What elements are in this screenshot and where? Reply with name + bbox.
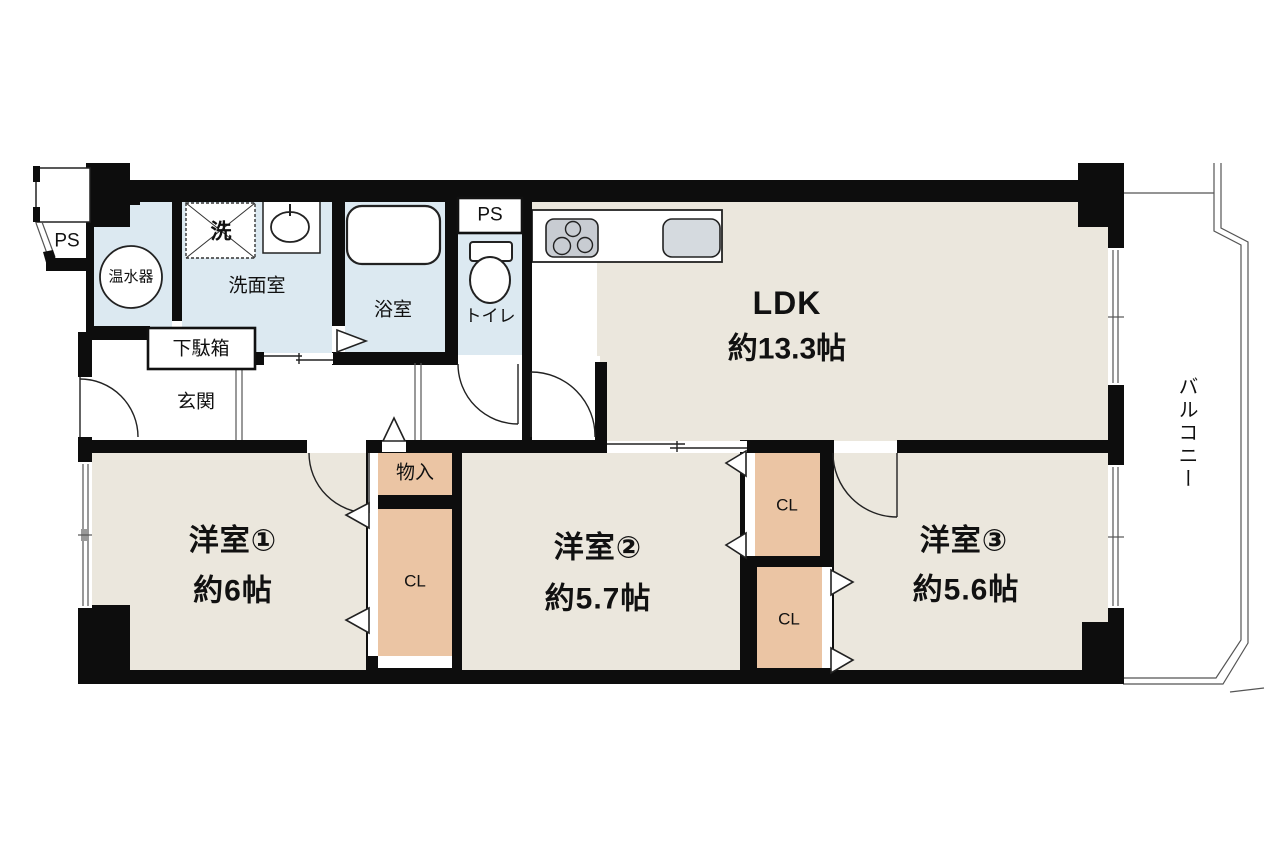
kitchen-sink-icon (663, 219, 720, 257)
pipe-space-outside-label: PS (54, 231, 79, 252)
window-western3-balcony (1108, 465, 1124, 608)
ldk-area-label: 約13.3帖 (728, 333, 846, 366)
bathtub-icon (347, 206, 440, 264)
toilet-icon (470, 242, 512, 303)
sliding-door-washroom (264, 353, 333, 364)
closet2-label: CL (776, 496, 798, 515)
western2-area-label: 約5.7帖 (545, 583, 652, 616)
closet3-label: CL (778, 610, 800, 629)
floor-plan-page: LDK 約13.3帖 洋室① 約6帖 洋室② 約5.7帖 洋室③ 約5.6帖 温… (0, 0, 1280, 850)
washing-machine-label: 洗 (211, 221, 232, 244)
washroom-label: 洗面室 (228, 275, 285, 297)
floor-plan-drawing: LDK 約13.3帖 洋室① 約6帖 洋室② 約5.7帖 洋室③ 約5.6帖 温… (0, 0, 1280, 850)
western3-floor (834, 453, 1108, 670)
western2-label: 洋室② (554, 531, 642, 565)
western3-label: 洋室③ (920, 524, 1008, 558)
closet1-label: CL (404, 572, 426, 591)
bathroom-label: 浴室 (374, 299, 412, 321)
storage-label: 物入 (396, 462, 434, 484)
sliding-door-ldk-western2 (607, 441, 747, 452)
entrance-label: 玄関 (177, 391, 215, 413)
western1-label: 洋室① (189, 524, 277, 558)
water-heater-label: 温水器 (108, 269, 153, 286)
western1-floor (90, 453, 366, 670)
western1-area-label: 約6帖 (193, 575, 273, 608)
window-west (78, 462, 92, 608)
stove-burner-icon (578, 238, 593, 253)
window-ldk-balcony (1108, 248, 1124, 385)
shoe-cabinet-label: 下駄箱 (172, 338, 229, 360)
lavatory-sink-icon (263, 200, 320, 253)
stove-burner-icon (566, 222, 581, 237)
balcony-label: バルコニー (1175, 376, 1197, 491)
pipe-space-toilet-label: PS (477, 205, 502, 226)
ldk-label: LDK (753, 285, 822, 321)
western3-area-label: 約5.6帖 (913, 574, 1020, 607)
toilet-label: トイレ (465, 307, 516, 326)
stove-burner-icon (554, 238, 571, 255)
